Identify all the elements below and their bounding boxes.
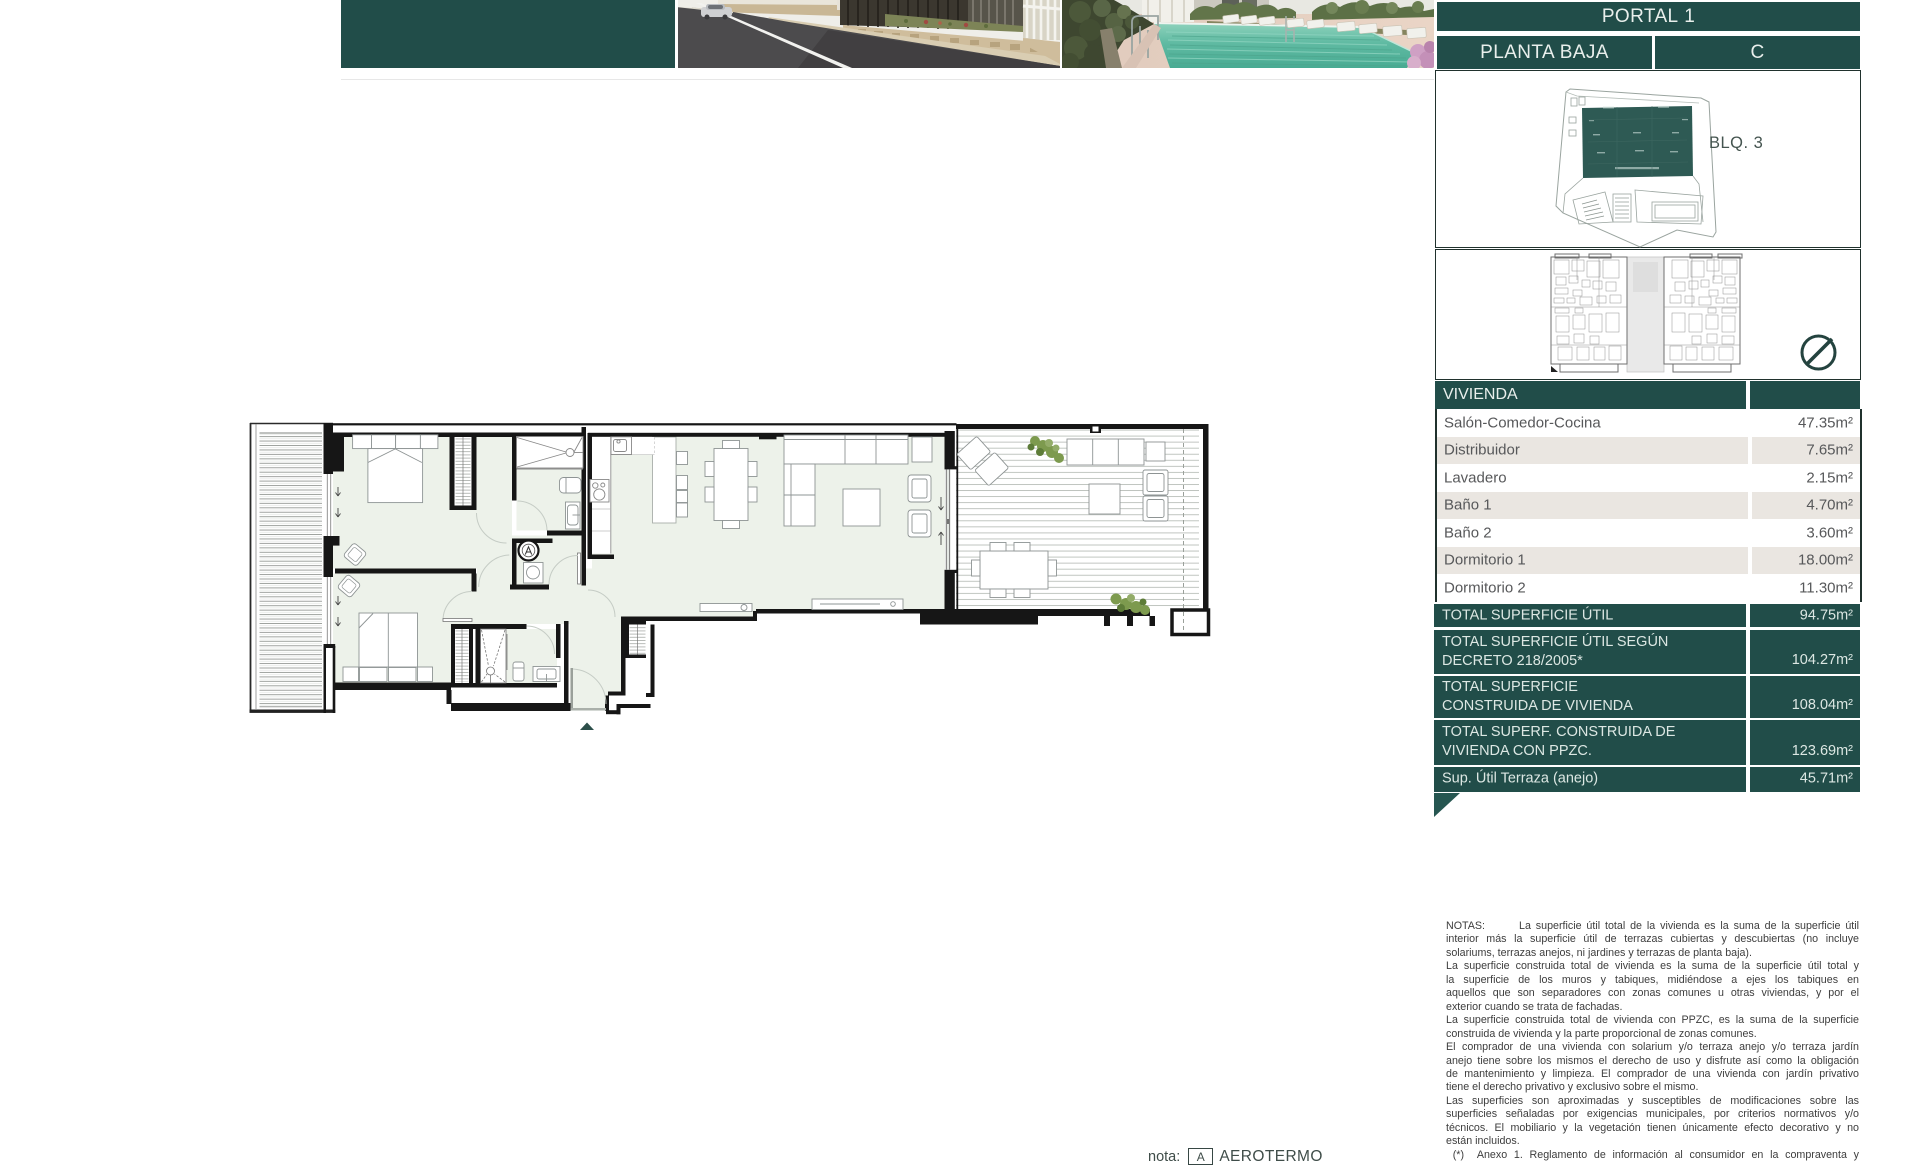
svg-text:BLQ. 3: BLQ. 3 <box>1709 134 1763 152</box>
